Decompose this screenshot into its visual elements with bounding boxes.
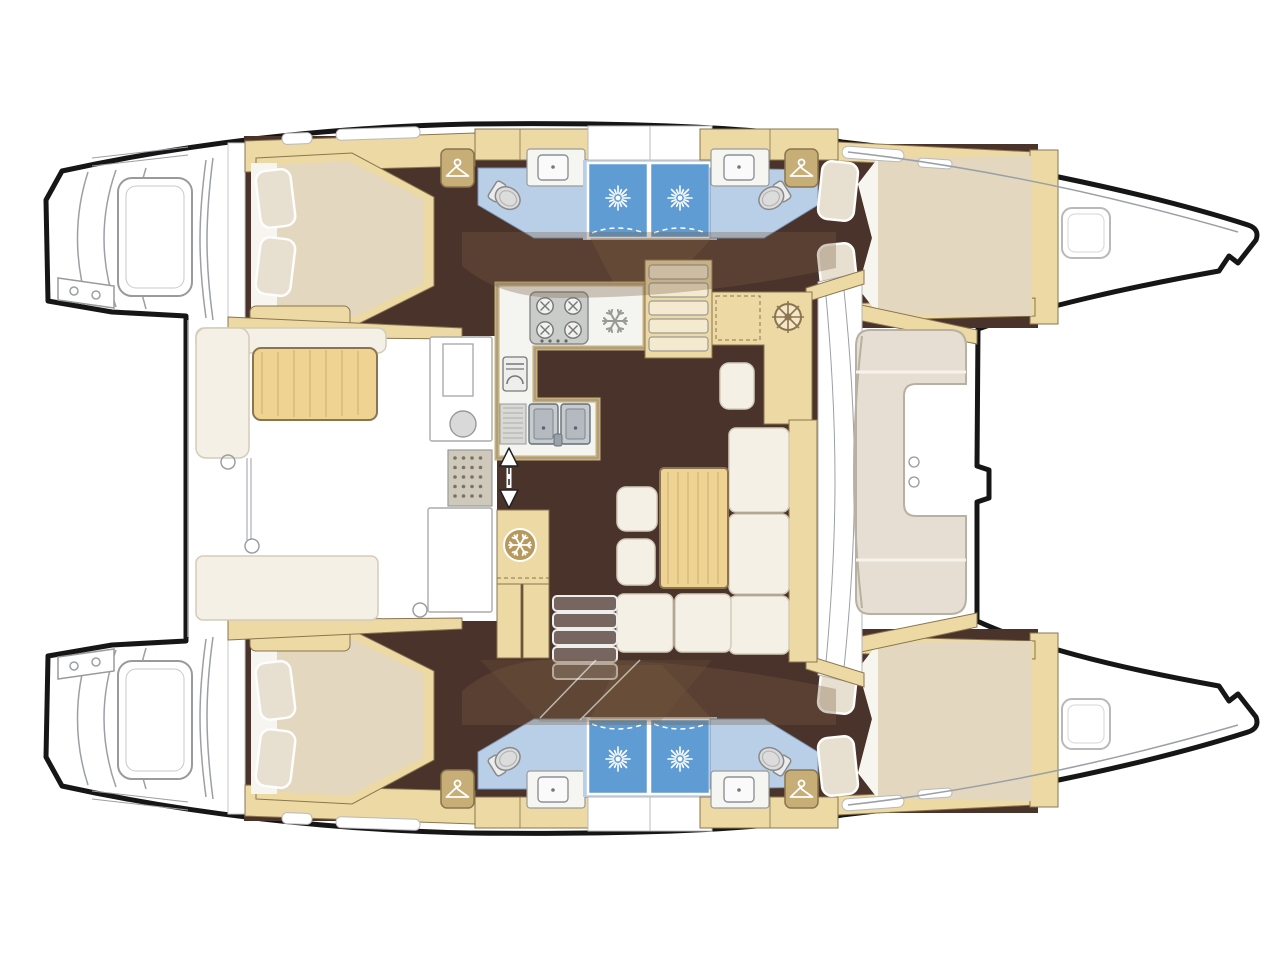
cockpit-sink [450, 411, 476, 437]
saloon [497, 260, 864, 687]
sofa-cushion [675, 594, 731, 652]
sofa-backrest-sill [789, 420, 817, 662]
cockpit-bench-side [196, 328, 249, 458]
stool-cushion [617, 539, 655, 585]
cup-holder [909, 477, 919, 487]
stern-window [118, 178, 192, 296]
catamaran-floor-plan-image [0, 0, 1277, 957]
fridge-cabinet [497, 510, 549, 658]
pillow [255, 168, 297, 229]
shower-stall [650, 163, 710, 238]
sofa-cushion [729, 596, 789, 654]
cup-holder [909, 457, 919, 467]
shower-stall [588, 163, 648, 238]
cockpit-cabinet [428, 508, 492, 612]
pillow [817, 160, 859, 221]
sofa-cushion [617, 594, 673, 652]
stool-cushion [617, 487, 657, 531]
bow-hatch [1062, 208, 1110, 258]
sofa-cushion [729, 428, 789, 512]
nav-seat [720, 363, 754, 409]
hull-window [282, 132, 312, 144]
double-sink-icon [500, 404, 590, 446]
hull-window [336, 127, 420, 141]
pillow [255, 236, 297, 297]
double-bed [858, 156, 1032, 316]
cockpit-bench-aft [196, 556, 378, 620]
shower-stalls [583, 126, 717, 240]
doormat [448, 450, 492, 506]
deck-plan-svg [0, 0, 1277, 957]
oven-icon [503, 357, 527, 391]
sofa-cushion [729, 514, 789, 594]
